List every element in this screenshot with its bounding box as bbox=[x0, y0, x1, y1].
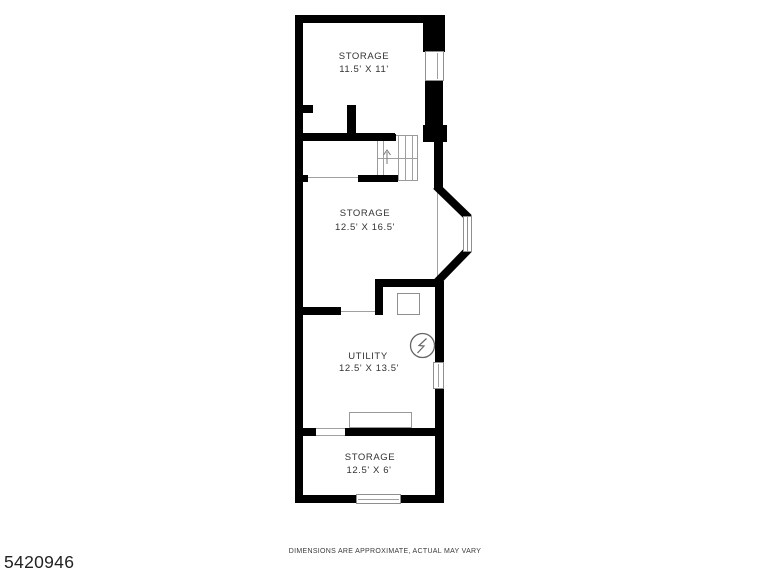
furnace-box bbox=[397, 293, 420, 315]
room-dims-utility: 12.5' X 13.5' bbox=[339, 364, 399, 374]
room-dims-storage-mid: 12.5' X 16.5' bbox=[335, 223, 395, 233]
stair-direction-arrow-icon bbox=[381, 147, 393, 167]
listing-id: 5420946 bbox=[4, 552, 74, 573]
opening-line-door-top bbox=[316, 428, 345, 429]
bay-window bbox=[430, 180, 476, 290]
window-utility-right bbox=[433, 362, 444, 389]
floorplan-page: STORAGE 11.5' X 11' STORAGE 12.5' X 16.5… bbox=[0, 0, 768, 576]
electrical-panel-icon bbox=[409, 332, 436, 359]
opening-line-door-bottom bbox=[316, 435, 345, 436]
wall-right-lower bbox=[435, 281, 444, 503]
room-label-storage-mid: STORAGE bbox=[340, 209, 390, 219]
disclaimer-text: DIMENSIONS ARE APPROXIMATE, ACTUAL MAY V… bbox=[289, 548, 481, 555]
window-frame-line bbox=[437, 53, 438, 79]
opening-line-utility bbox=[341, 311, 375, 312]
room-dims-storage-bottom: 12.5' X 6' bbox=[346, 466, 391, 476]
wall-below-stairs bbox=[358, 175, 398, 182]
room-label-storage-top: STORAGE bbox=[339, 52, 389, 62]
wall-bottom-partition-left bbox=[295, 428, 316, 436]
wall-stub-left-landing bbox=[295, 175, 308, 182]
room-label-storage-bottom: STORAGE bbox=[345, 453, 395, 463]
wall-utility-vertical bbox=[375, 279, 383, 315]
window-frame-line bbox=[358, 499, 399, 500]
room-label-utility: UTILITY bbox=[348, 352, 388, 362]
wall-utility-top-left bbox=[295, 307, 341, 315]
wall-stub-top-left bbox=[295, 105, 313, 113]
wall-right-top-block bbox=[423, 15, 445, 52]
utility-fixture bbox=[349, 412, 412, 428]
window-top-right bbox=[425, 51, 444, 81]
room-dims-storage-top: 11.5' X 11' bbox=[339, 65, 389, 75]
opening-line-landing bbox=[308, 177, 358, 178]
window-frame-line bbox=[438, 364, 439, 387]
wall-mid-bottom-right bbox=[375, 279, 443, 287]
wall-bottom-partition-right bbox=[345, 428, 444, 436]
wall-stair-top-bar bbox=[377, 134, 396, 141]
window-bottom bbox=[356, 494, 401, 504]
